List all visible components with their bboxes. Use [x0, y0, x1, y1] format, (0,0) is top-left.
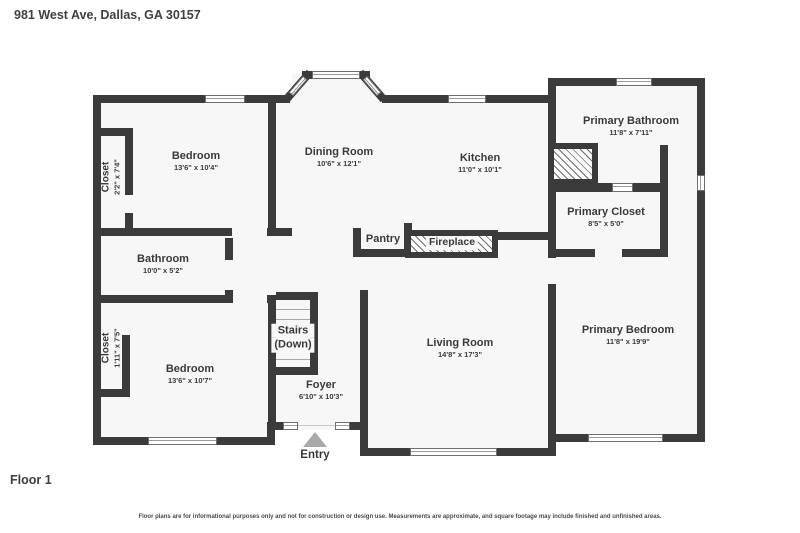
- room-name: Bathroom: [137, 252, 189, 266]
- entry-door-threshold: [298, 425, 335, 426]
- room-label-foyer: Foyer 6'10" x 10'3": [299, 378, 343, 402]
- room-label-closet-2: Closet 1'11" x 7'5": [100, 328, 123, 367]
- room-name: Fireplace: [426, 236, 478, 250]
- room-name: Pantry: [366, 232, 400, 246]
- room-label-fireplace: Fireplace: [426, 236, 478, 250]
- wall: [93, 389, 130, 397]
- room-dims: 1'11" x 7'5": [113, 328, 123, 367]
- entry-door-jamb: [335, 422, 350, 430]
- room-dims: 11'0" x 10'1": [458, 165, 502, 175]
- entry-arrow-icon: [303, 432, 327, 447]
- room-dims: 13'6" x 10'4": [172, 163, 220, 173]
- room-label-primary-closet: Primary Closet 8'5" x 5'0": [567, 205, 645, 229]
- window-icon: [588, 434, 663, 442]
- window-icon: [312, 71, 360, 79]
- wall: [101, 228, 232, 236]
- wall: [268, 95, 276, 236]
- room-dims: 14'8" x 17'3": [427, 350, 494, 360]
- wall: [548, 249, 595, 257]
- wall: [125, 213, 133, 228]
- room-name: Primary Bathroom: [583, 114, 679, 128]
- wall: [225, 238, 233, 260]
- wall: [498, 232, 548, 240]
- room-name: Closet: [100, 328, 113, 367]
- room-label-primary-bathroom: Primary Bathroom 11'8" x 7'11": [583, 114, 679, 138]
- window-icon: [697, 175, 705, 191]
- room-dims: 10'6" x 12'1": [305, 159, 373, 169]
- shower-hatch: [548, 143, 598, 185]
- wall: [548, 284, 556, 456]
- room-name: Stairs: [271, 324, 314, 338]
- room-dims: 8'5" x 5'0": [567, 219, 645, 229]
- window-icon: [205, 95, 245, 103]
- room-name: Primary Bedroom: [582, 323, 674, 337]
- wall: [93, 295, 228, 303]
- wall: [276, 367, 318, 375]
- wall: [93, 95, 290, 103]
- room-dims: 11'8" x 19'9": [582, 337, 674, 347]
- wall: [125, 128, 133, 195]
- room-name: Foyer: [299, 378, 343, 392]
- room-dims: 10'0" x 5'2": [137, 266, 189, 276]
- room-label-living-room: Living Room 14'8" x 17'3": [427, 336, 494, 360]
- wall: [697, 78, 705, 442]
- room-label-bedroom-2: Bedroom 13'6" x 10'7": [166, 362, 214, 386]
- room-label-dining-room: Dining Room 10'6" x 12'1": [305, 145, 373, 169]
- room-label-stairs: Stairs (Down): [271, 324, 314, 353]
- room-name: Bedroom: [172, 149, 220, 163]
- wall: [660, 145, 668, 192]
- window-icon: [148, 437, 217, 445]
- room-dims: 2'2" x 7'4": [113, 159, 123, 195]
- room-label-pantry: Pantry: [366, 232, 400, 246]
- room-name: Bedroom: [166, 362, 214, 376]
- room-label-bedroom-1: Bedroom 13'6" x 10'4": [172, 149, 220, 173]
- wall: [360, 290, 368, 456]
- room-dims: 11'8" x 7'11": [583, 128, 679, 138]
- wall: [622, 249, 663, 257]
- room-dims: 13'6" x 10'7": [166, 376, 214, 386]
- window-icon: [410, 448, 497, 456]
- wall: [660, 192, 668, 257]
- disclaimer-text: Floor plans are for informational purpos…: [0, 514, 800, 520]
- room-label-bathroom: Bathroom 10'0" x 5'2": [137, 252, 189, 276]
- room-name: Kitchen: [458, 151, 502, 165]
- room-dims: 6'10" x 10'3": [299, 392, 343, 402]
- entry-label: Entry: [300, 449, 329, 461]
- wall: [225, 290, 233, 303]
- address-title: 981 West Ave, Dallas, GA 30157: [14, 8, 201, 22]
- wall: [122, 335, 130, 397]
- room-label-primary-bedroom: Primary Bedroom 11'8" x 19'9": [582, 323, 674, 347]
- window-icon: [612, 183, 633, 192]
- floor-area: [360, 95, 556, 456]
- room-name: Living Room: [427, 336, 494, 350]
- window-icon: [448, 95, 486, 103]
- floor-label: Floor 1: [10, 473, 52, 487]
- floor-plan-page: 981 West Ave, Dallas, GA 30157: [0, 0, 800, 533]
- wall: [268, 295, 276, 430]
- room-name: Dining Room: [305, 145, 373, 159]
- room-label-closet-1: Closet 2'2" x 7'4": [100, 159, 123, 195]
- entry-door-jamb: [283, 422, 298, 430]
- window-icon: [616, 78, 652, 86]
- room-label-kitchen: Kitchen 11'0" x 10'1": [458, 151, 502, 175]
- room-sub: (Down): [271, 338, 314, 352]
- room-name: Primary Closet: [567, 205, 645, 219]
- room-name: Closet: [100, 159, 113, 195]
